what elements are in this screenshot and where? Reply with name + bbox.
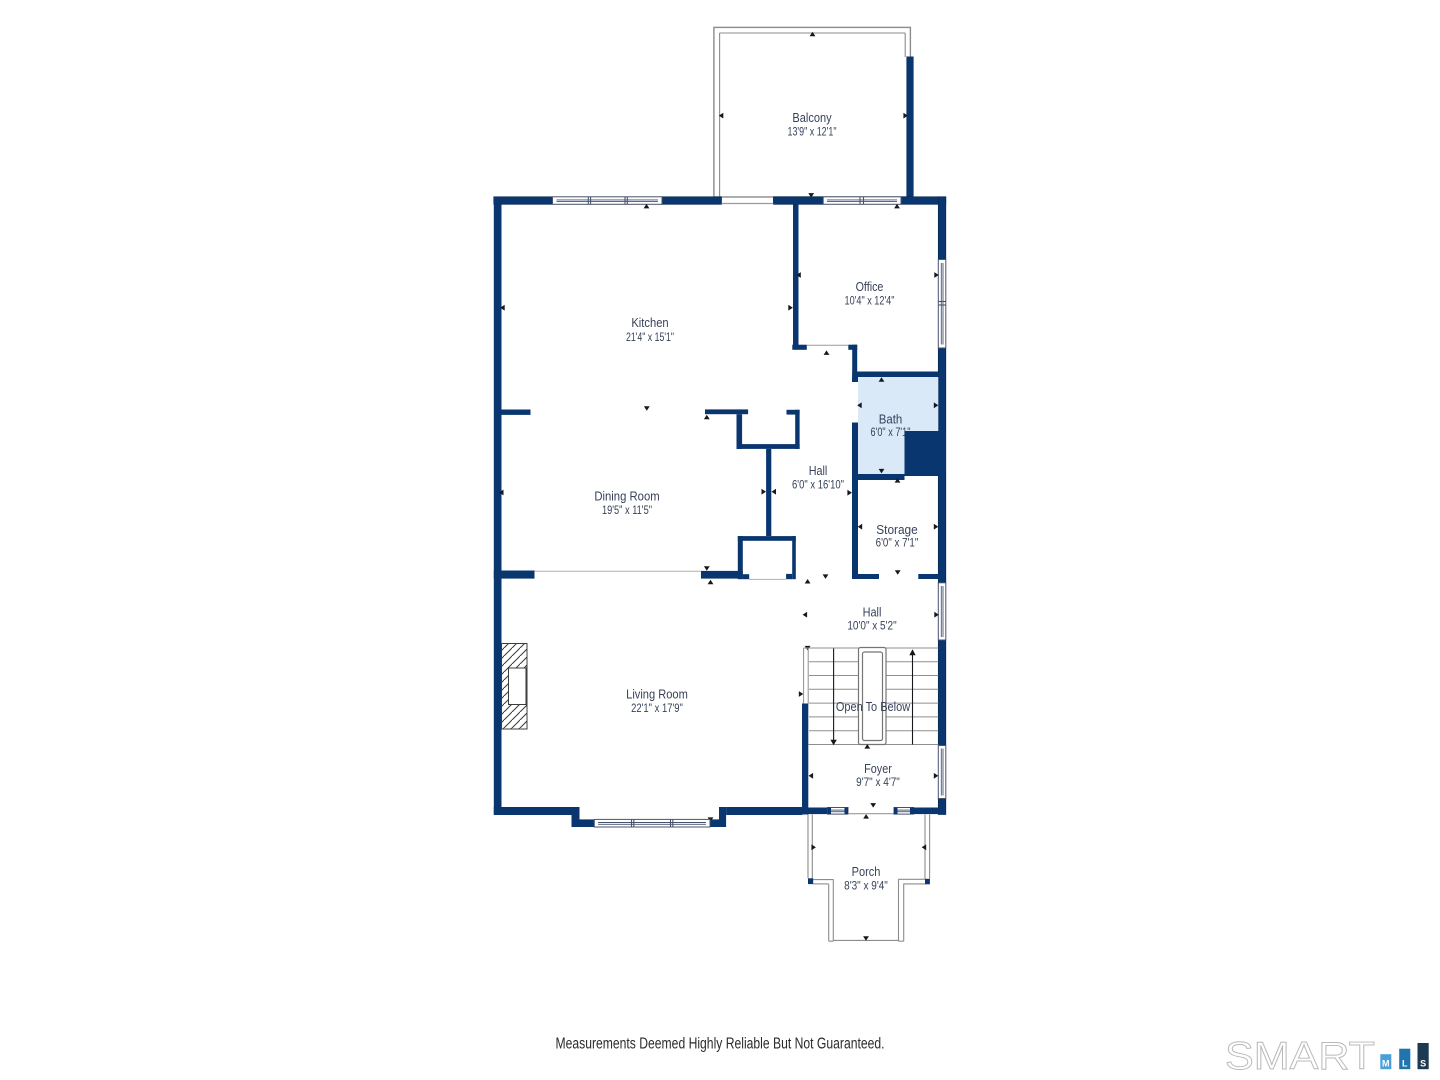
svg-text:19'5" x 11'5": 19'5" x 11'5" [602,504,652,517]
svg-text:9'7" x 4'7": 9'7" x 4'7" [856,776,900,789]
svg-text:10'4" x 12'4": 10'4" x 12'4" [845,295,895,308]
svg-text:Balcony: Balcony [792,110,832,125]
svg-text:SMART: SMART [1225,1035,1375,1078]
svg-text:Hall: Hall [809,463,828,478]
svg-text:M: M [1382,1059,1390,1069]
svg-text:Living Room: Living Room [626,687,688,702]
svg-text:21'4" x 15'1": 21'4" x 15'1" [626,331,674,344]
svg-text:13'9" x 12'1": 13'9" x 12'1" [788,126,837,139]
svg-text:Porch: Porch [852,864,881,879]
svg-text:Dining Room: Dining Room [594,489,659,504]
svg-text:S: S [1420,1059,1426,1069]
svg-text:Kitchen: Kitchen [631,315,668,330]
svg-text:Measurements Deemed Highly Rel: Measurements Deemed Highly Reliable But … [556,1036,885,1053]
svg-text:10'0" x 5'2": 10'0" x 5'2" [847,620,896,633]
svg-text:Open To Below: Open To Below [836,699,911,714]
svg-text:Hall: Hall [863,605,882,620]
svg-text:22'1" x 17'9": 22'1" x 17'9" [631,702,683,715]
svg-text:L: L [1402,1059,1408,1069]
svg-text:6'0" x 7'1": 6'0" x 7'1" [876,537,919,550]
svg-text:6'0" x 16'10": 6'0" x 16'10" [792,479,844,492]
svg-text:Storage: Storage [876,522,918,537]
svg-text:Bath: Bath [879,412,903,427]
svg-text:Foyer: Foyer [864,761,892,776]
svg-text:8'3" x 9'4": 8'3" x 9'4" [844,880,888,893]
svg-text:Office: Office [856,279,884,294]
